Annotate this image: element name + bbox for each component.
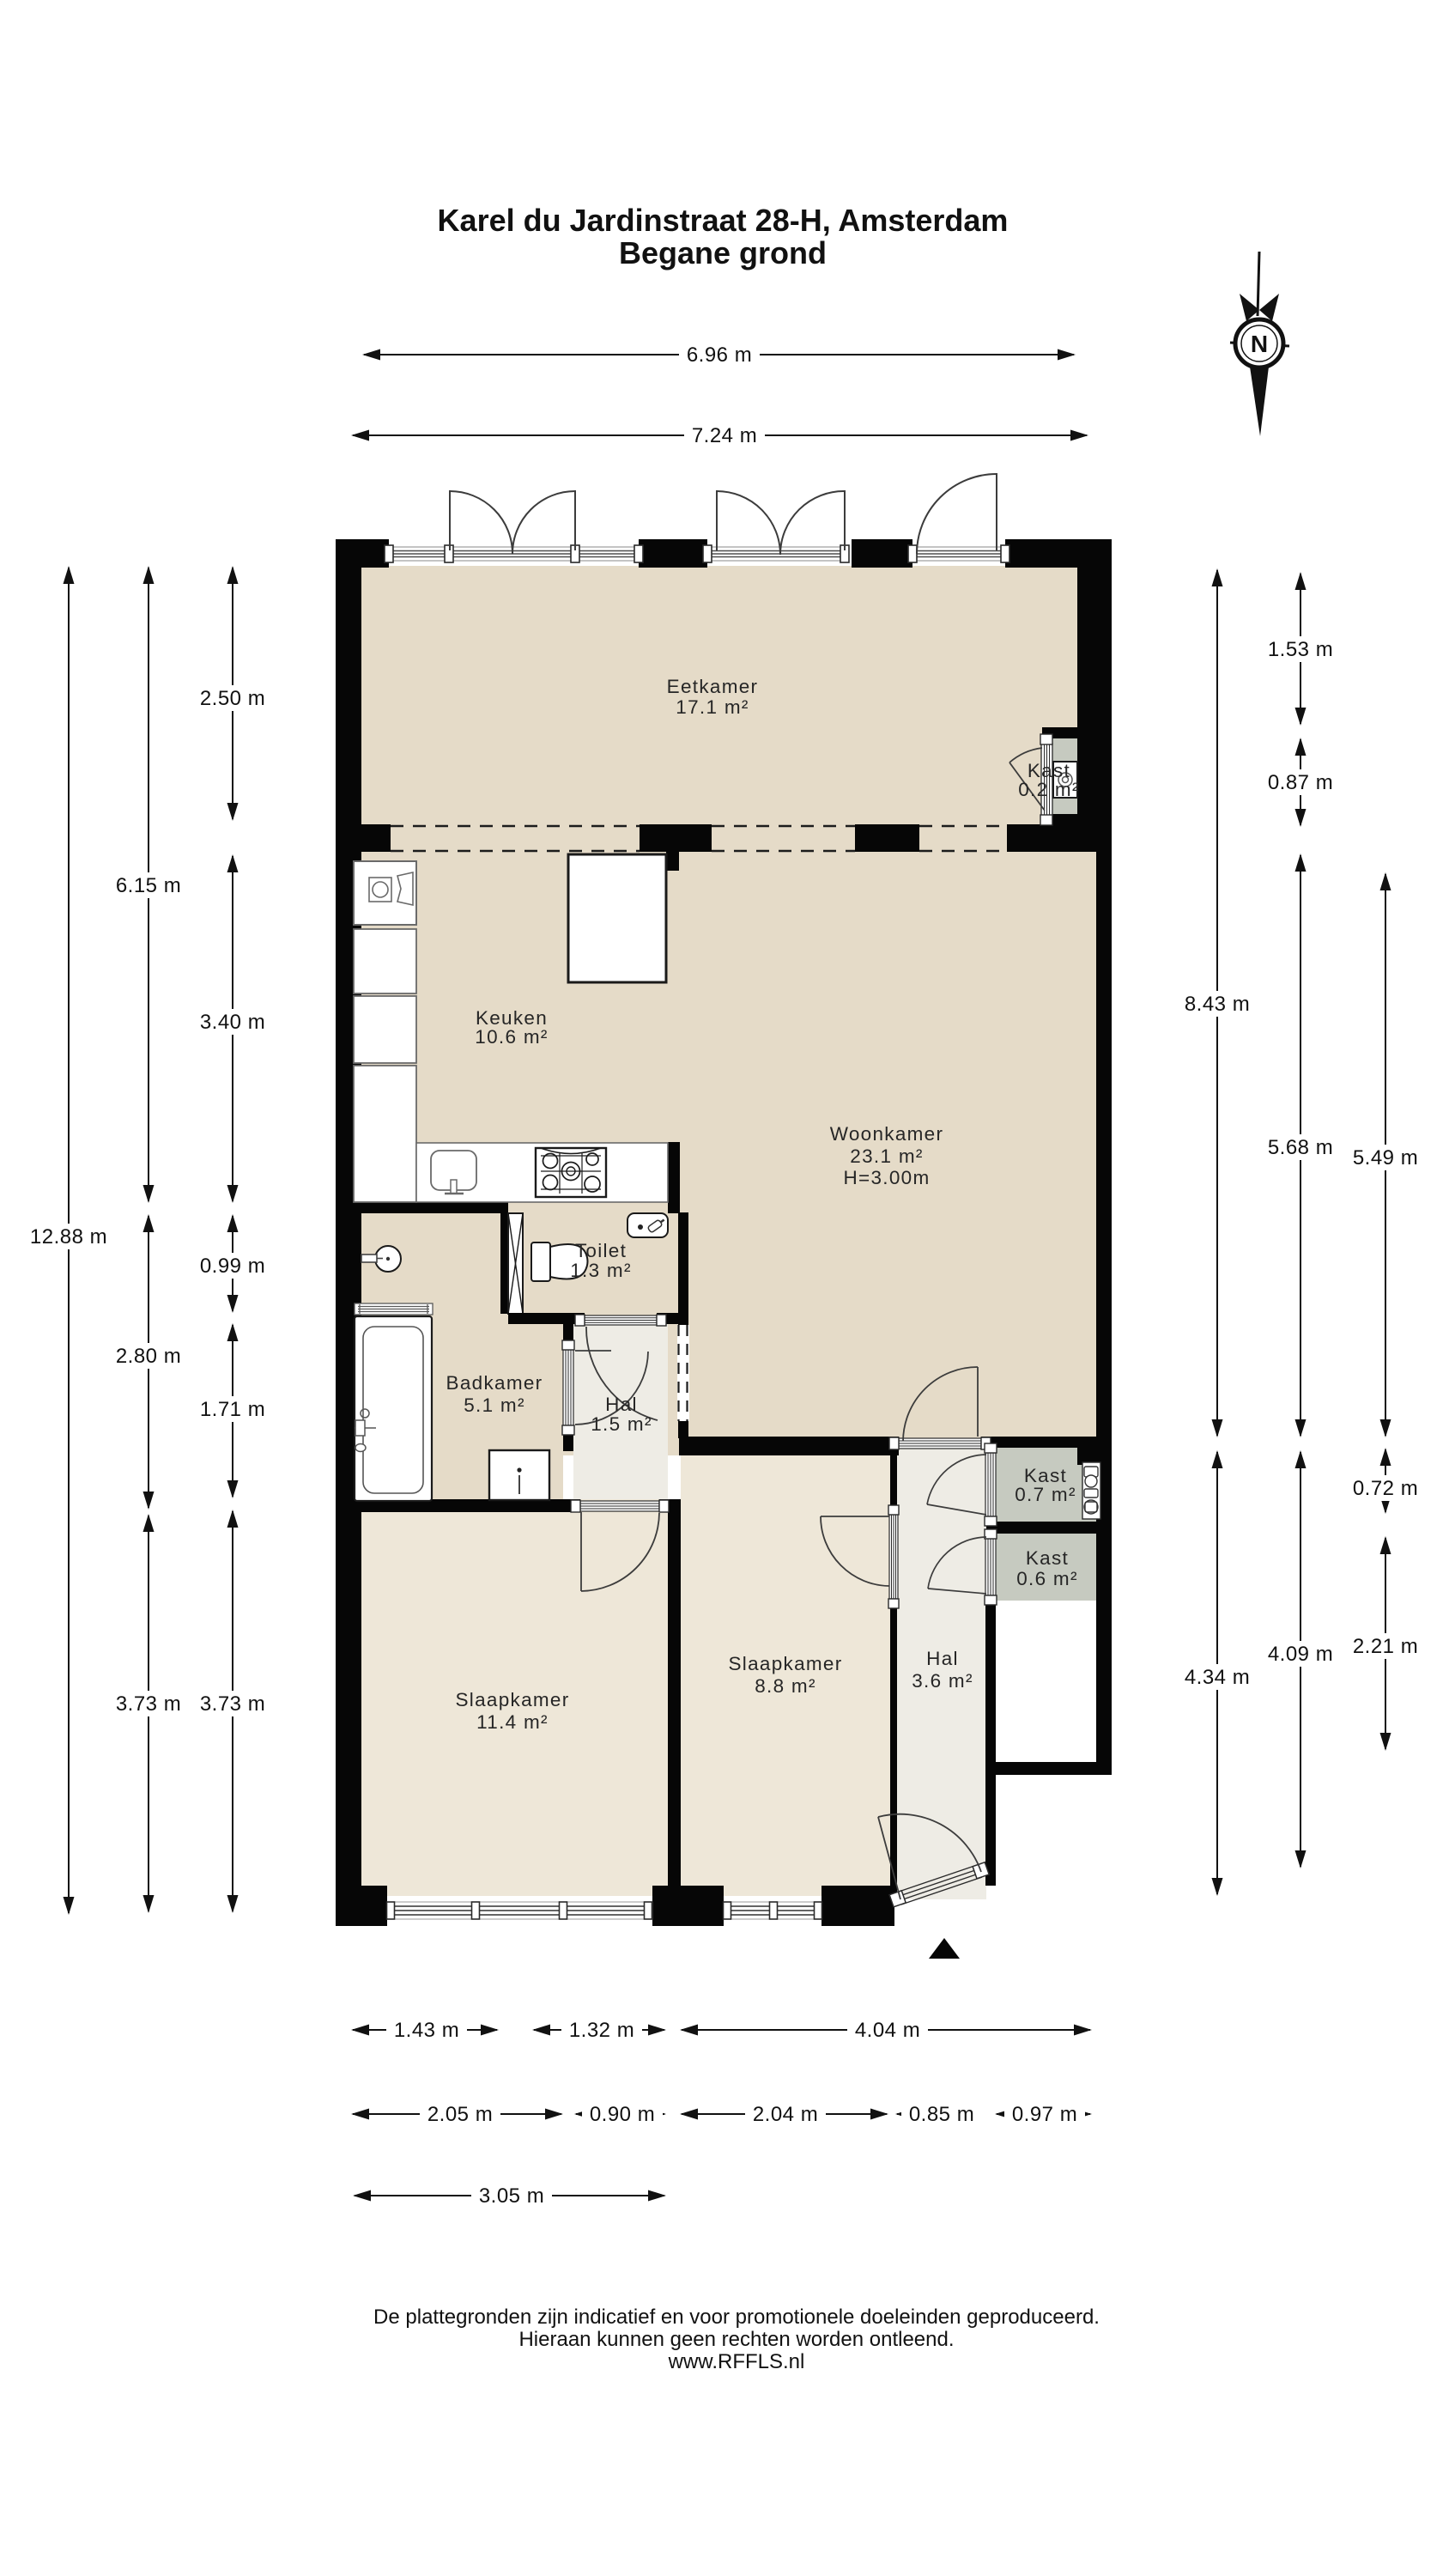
svg-text:0.87 m: 0.87 m [1268,771,1333,794]
svg-text:N: N [1251,331,1268,357]
svg-text:Hal: Hal [605,1394,638,1415]
svg-text:8.43 m: 8.43 m [1185,993,1250,1016]
svg-text:Begane grond: Begane grond [619,235,827,270]
svg-text:3.6 m²: 3.6 m² [912,1670,973,1692]
svg-text:Slaapkamer: Slaapkamer [455,1689,569,1710]
svg-text:De plattegronden zijn indicati: De plattegronden zijn indicatief en voor… [373,2306,1100,2329]
svg-text:1.5 m²: 1.5 m² [591,1413,652,1435]
svg-text:Badkamer: Badkamer [446,1372,543,1394]
svg-text:0.7 m²: 0.7 m² [1015,1484,1076,1505]
svg-text:11.4 m²: 11.4 m² [476,1711,549,1733]
svg-text:23.1 m²: 23.1 m² [850,1145,923,1167]
svg-text:17.1 m²: 17.1 m² [676,696,749,718]
svg-text:4.04 m: 4.04 m [855,2019,920,2042]
svg-text:0.90 m: 0.90 m [590,2103,655,2126]
svg-text:3.73 m: 3.73 m [116,1692,181,1716]
svg-text:Karel du Jardinstraat 28-H, Am: Karel du Jardinstraat 28-H, Amsterdam [438,203,1009,238]
svg-text:3.05 m: 3.05 m [479,2184,544,2208]
svg-text:10.6 m²: 10.6 m² [475,1026,548,1048]
svg-text:Kast: Kast [1026,1547,1069,1569]
svg-text:2.50 m: 2.50 m [200,687,265,710]
svg-text:7.24 m: 7.24 m [692,424,757,447]
svg-text:2.80 m: 2.80 m [116,1345,181,1368]
svg-text:6.15 m: 6.15 m [116,874,181,897]
svg-text:0.99 m: 0.99 m [200,1255,265,1278]
svg-text:0.6 m²: 0.6 m² [1016,1568,1078,1589]
svg-text:2.21 m: 2.21 m [1353,1635,1418,1658]
svg-text:3.40 m: 3.40 m [200,1011,265,1034]
svg-text:3.73 m: 3.73 m [200,1692,265,1716]
svg-text:6.96 m: 6.96 m [687,343,752,367]
svg-text:1.71 m: 1.71 m [200,1398,265,1421]
svg-text:H=3.00m: H=3.00m [843,1167,930,1188]
svg-text:0.2 m²: 0.2 m² [1018,779,1080,800]
svg-text:12.88 m: 12.88 m [30,1225,107,1249]
svg-text:www.RFFLS.nl: www.RFFLS.nl [668,2350,805,2373]
svg-text:1.43 m: 1.43 m [394,2019,459,2042]
svg-text:0.85 m: 0.85 m [909,2103,974,2126]
svg-text:4.09 m: 4.09 m [1268,1643,1333,1666]
svg-text:2.04 m: 2.04 m [753,2103,818,2126]
svg-text:1.32 m: 1.32 m [569,2019,634,2042]
svg-text:5.68 m: 5.68 m [1268,1136,1333,1159]
svg-text:Hieraan kunnen geen rechten wo: Hieraan kunnen geen rechten worden ontle… [518,2328,954,2351]
svg-text:1.3 m²: 1.3 m² [570,1260,632,1281]
svg-text:1.53 m: 1.53 m [1268,638,1333,661]
svg-text:Eetkamer: Eetkamer [667,676,759,697]
svg-text:Slaapkamer: Slaapkamer [728,1653,842,1674]
svg-text:0.72 m: 0.72 m [1353,1477,1418,1500]
svg-text:Hal: Hal [926,1648,959,1669]
svg-text:5.49 m: 5.49 m [1353,1146,1418,1170]
svg-text:4.34 m: 4.34 m [1185,1666,1250,1689]
svg-text:0.97 m: 0.97 m [1012,2103,1077,2126]
svg-text:2.05 m: 2.05 m [427,2103,493,2126]
svg-text:8.8 m²: 8.8 m² [755,1675,816,1697]
svg-text:5.1 m²: 5.1 m² [464,1394,525,1416]
svg-text:Toilet: Toilet [575,1240,627,1261]
svg-text:Woonkamer: Woonkamer [830,1123,944,1145]
